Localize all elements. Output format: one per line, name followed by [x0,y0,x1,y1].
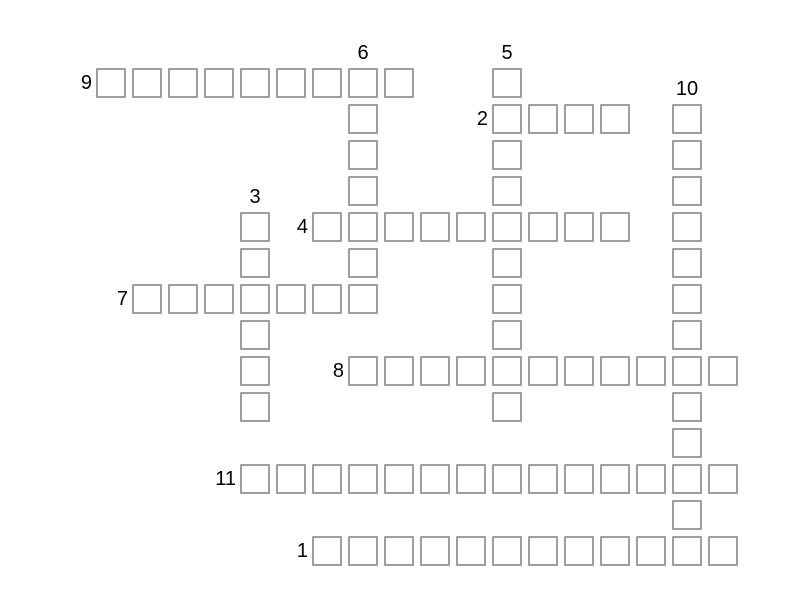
crossword-cell-r0c4[interactable] [240,68,270,98]
crossword-cell-r6c11[interactable] [492,284,522,314]
clue-number-8: 8 [306,358,344,384]
crossword-cell-r9c11[interactable] [492,392,522,422]
crossword-cell-r4c4[interactable] [240,212,270,242]
crossword-cell-r13c8[interactable] [384,536,414,566]
crossword-cell-r6c4[interactable] [240,284,270,314]
crossword-cell-r13c13[interactable] [564,536,594,566]
crossword-cell-r1c11[interactable] [492,104,522,134]
crossword-cell-r2c16[interactable] [672,140,702,170]
crossword-cell-r11c12[interactable] [528,464,558,494]
crossword-cell-r8c13[interactable] [564,356,594,386]
crossword-cell-r11c8[interactable] [384,464,414,494]
crossword-cell-r0c3[interactable] [204,68,234,98]
crossword-cell-r8c14[interactable] [600,356,630,386]
crossword-cell-r8c15[interactable] [636,356,666,386]
crossword-cell-r4c7[interactable] [348,212,378,242]
clue-number-6: 6 [343,40,383,66]
crossword-cell-r11c17[interactable] [708,464,738,494]
crossword-cell-r11c15[interactable] [636,464,666,494]
crossword-cell-r8c12[interactable] [528,356,558,386]
clue-number-2: 2 [450,106,488,132]
crossword-cell-r4c14[interactable] [600,212,630,242]
crossword-cell-r6c3[interactable] [204,284,234,314]
clue-number-4: 4 [270,214,308,240]
crossword-grid: 1234567891011 [0,0,800,600]
clue-number-9: 9 [54,70,92,96]
crossword-cell-r7c16[interactable] [672,320,702,350]
crossword-cell-r0c5[interactable] [276,68,306,98]
crossword-cell-r13c12[interactable] [528,536,558,566]
crossword-cell-r4c11[interactable] [492,212,522,242]
crossword-cell-r11c10[interactable] [456,464,486,494]
crossword-cell-r6c2[interactable] [168,284,198,314]
crossword-cell-r11c7[interactable] [348,464,378,494]
crossword-cell-r8c10[interactable] [456,356,486,386]
crossword-cell-r3c7[interactable] [348,176,378,206]
crossword-cell-r6c7[interactable] [348,284,378,314]
crossword-cell-r11c14[interactable] [600,464,630,494]
crossword-cell-r13c9[interactable] [420,536,450,566]
crossword-cell-r13c17[interactable] [708,536,738,566]
clue-number-5: 5 [487,40,527,66]
clue-number-11: 11 [198,466,236,492]
clue-number-10: 10 [667,76,707,102]
crossword-cell-r8c8[interactable] [384,356,414,386]
crossword-cell-r8c7[interactable] [348,356,378,386]
crossword-cell-r6c6[interactable] [312,284,342,314]
crossword-cell-r11c4[interactable] [240,464,270,494]
crossword-cell-r0c11[interactable] [492,68,522,98]
crossword-cell-r13c6[interactable] [312,536,342,566]
crossword-cell-r13c14[interactable] [600,536,630,566]
crossword-cell-r5c4[interactable] [240,248,270,278]
crossword-cell-r8c17[interactable] [708,356,738,386]
crossword-cell-r11c16[interactable] [672,464,702,494]
crossword-cell-r5c16[interactable] [672,248,702,278]
crossword-cell-r10c16[interactable] [672,428,702,458]
crossword-cell-r5c11[interactable] [492,248,522,278]
crossword-cell-r4c9[interactable] [420,212,450,242]
crossword-cell-r11c11[interactable] [492,464,522,494]
crossword-cell-r6c5[interactable] [276,284,306,314]
crossword-cell-r9c4[interactable] [240,392,270,422]
crossword-cell-r13c10[interactable] [456,536,486,566]
crossword-cell-r2c11[interactable] [492,140,522,170]
crossword-cell-r4c8[interactable] [384,212,414,242]
crossword-cell-r4c13[interactable] [564,212,594,242]
crossword-cell-r13c7[interactable] [348,536,378,566]
crossword-cell-r8c9[interactable] [420,356,450,386]
crossword-cell-r7c11[interactable] [492,320,522,350]
crossword-cell-r7c4[interactable] [240,320,270,350]
crossword-cell-r13c11[interactable] [492,536,522,566]
crossword-cell-r3c11[interactable] [492,176,522,206]
crossword-cell-r11c9[interactable] [420,464,450,494]
crossword-cell-r1c16[interactable] [672,104,702,134]
crossword-cell-r8c11[interactable] [492,356,522,386]
clue-number-3: 3 [235,184,275,210]
crossword-cell-r1c14[interactable] [600,104,630,134]
crossword-cell-r1c7[interactable] [348,104,378,134]
crossword-cell-r4c10[interactable] [456,212,486,242]
crossword-cell-r0c6[interactable] [312,68,342,98]
clue-number-7: 7 [90,286,128,312]
crossword-cell-r11c6[interactable] [312,464,342,494]
crossword-cell-r0c2[interactable] [168,68,198,98]
crossword-cell-r2c7[interactable] [348,140,378,170]
crossword-cell-r6c16[interactable] [672,284,702,314]
crossword-cell-r13c15[interactable] [636,536,666,566]
crossword-cell-r5c7[interactable] [348,248,378,278]
crossword-cell-r12c16[interactable] [672,500,702,530]
crossword-cell-r4c6[interactable] [312,212,342,242]
crossword-cell-r8c16[interactable] [672,356,702,386]
crossword-cell-r4c12[interactable] [528,212,558,242]
crossword-cell-r1c13[interactable] [564,104,594,134]
crossword-cell-r0c7[interactable] [348,68,378,98]
crossword-cell-r9c16[interactable] [672,392,702,422]
crossword-cell-r0c8[interactable] [384,68,414,98]
crossword-cell-r0c1[interactable] [132,68,162,98]
crossword-cell-r3c16[interactable] [672,176,702,206]
crossword-cell-r1c12[interactable] [528,104,558,134]
crossword-cell-r0c0[interactable] [96,68,126,98]
clue-number-1: 1 [270,538,308,564]
crossword-cell-r6c1[interactable] [132,284,162,314]
crossword-cell-r11c5[interactable] [276,464,306,494]
crossword-cell-r11c13[interactable] [564,464,594,494]
crossword-cell-r8c4[interactable] [240,356,270,386]
crossword-cell-r4c16[interactable] [672,212,702,242]
crossword-cell-r13c16[interactable] [672,536,702,566]
